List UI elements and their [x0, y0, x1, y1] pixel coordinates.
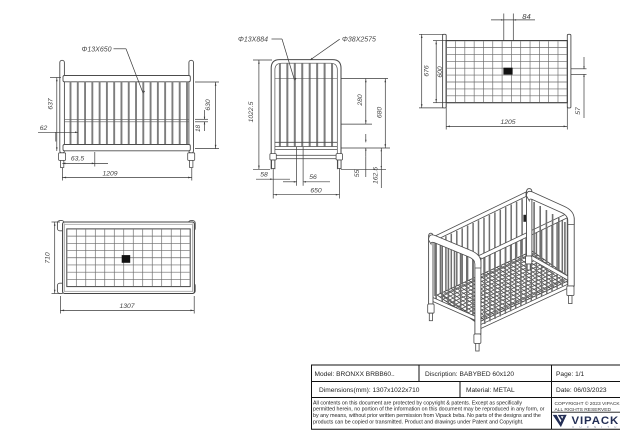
- svg-text:1209: 1209: [102, 170, 117, 177]
- svg-text:F U R N I T U R E: F U R N I T U R E: [573, 425, 620, 429]
- svg-text:Φ13X884: Φ13X884: [238, 37, 268, 44]
- svg-text:Φ38X2575: Φ38X2575: [342, 36, 376, 43]
- svg-text:630: 630: [205, 99, 212, 111]
- svg-text:57: 57: [575, 107, 582, 115]
- svg-text:680: 680: [377, 107, 384, 119]
- svg-text:Date: 06/03/2023: Date: 06/03/2023: [556, 387, 607, 394]
- svg-text:1307: 1307: [119, 303, 134, 310]
- svg-text:84: 84: [522, 12, 530, 21]
- svg-text:280: 280: [357, 94, 364, 107]
- svg-text:by any means, without prior wr: by any means, without prior written perm…: [313, 413, 541, 419]
- svg-text:58: 58: [260, 172, 268, 179]
- svg-text:Dimensions(mm): 1307x1022x710: Dimensions(mm): 1307x1022x710: [319, 387, 420, 394]
- svg-text:18: 18: [195, 125, 202, 133]
- svg-text:Φ13X650: Φ13X650: [82, 47, 112, 54]
- svg-text:COPYRIGHT © 2023 VIPACK,: COPYRIGHT © 2023 VIPACK,: [555, 400, 620, 407]
- svg-text:650: 650: [310, 187, 322, 194]
- svg-text:1022.5: 1022.5: [248, 101, 255, 122]
- svg-text:products can be copied or tran: products can be copied or transmitted. P…: [313, 420, 524, 426]
- svg-text:162.5: 162.5: [373, 167, 380, 184]
- svg-text:63,5: 63,5: [71, 156, 84, 163]
- svg-text:1205: 1205: [500, 119, 515, 126]
- svg-text:56: 56: [309, 174, 317, 181]
- svg-text:Discription: BABYBED 60x120: Discription: BABYBED 60x120: [425, 371, 514, 378]
- svg-text:55: 55: [354, 170, 361, 178]
- svg-text:All contents on this document: All contents on this document are protec…: [313, 400, 522, 406]
- svg-text:permitted herein, no portion o: permitted herein, no portion of the info…: [313, 407, 545, 413]
- svg-text:Material: METAL: Material: METAL: [466, 387, 515, 394]
- svg-text:600: 600: [437, 66, 444, 78]
- svg-text:ALL RIGHTS RESERVED: ALL RIGHTS RESERVED: [555, 407, 612, 413]
- svg-text:Page: 1/1: Page: 1/1: [556, 371, 585, 378]
- svg-text:637: 637: [48, 98, 55, 110]
- svg-text:710: 710: [44, 252, 51, 264]
- svg-text:62: 62: [40, 125, 48, 132]
- svg-text:Model: BRONXX BRBB60..: Model: BRONXX BRBB60..: [315, 371, 395, 378]
- svg-text:676: 676: [424, 65, 431, 77]
